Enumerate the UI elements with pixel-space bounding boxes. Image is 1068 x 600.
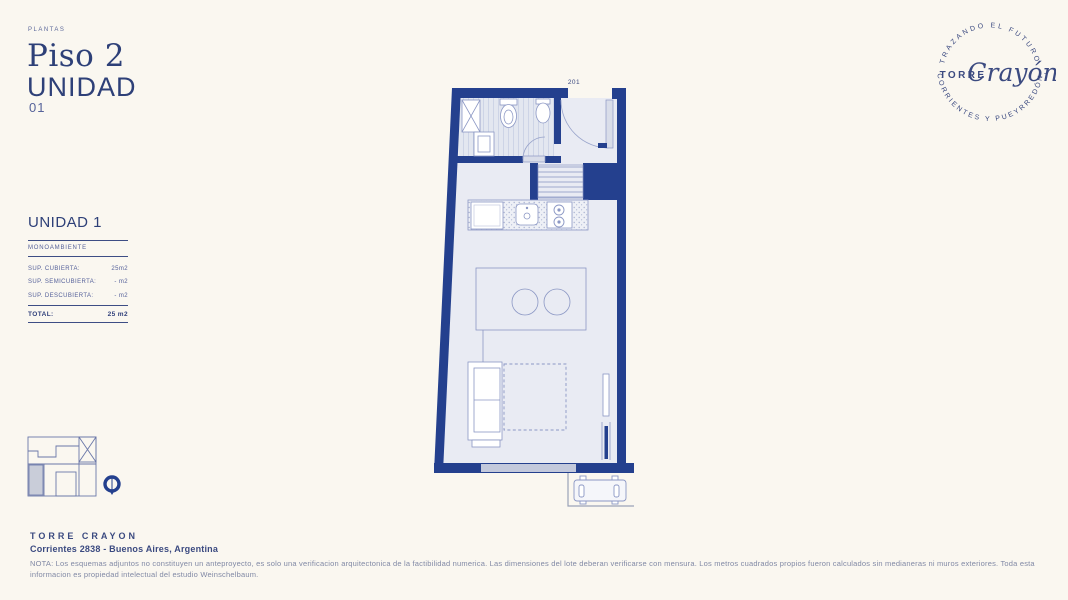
compass-arrow <box>109 490 115 495</box>
table-row: SUP. CUBIERTA: 25m2 <box>28 261 128 275</box>
brand-logo: TRAZANDO EL FUTURO CORRIENTES Y PUEYRRED… <box>924 8 1056 140</box>
row-value: 25m2 <box>111 266 128 272</box>
sink-faucet <box>526 207 528 209</box>
table-row: SUP. DESCUBIERTA: - m2 <box>28 288 128 302</box>
sofa-ottoman <box>472 440 500 447</box>
bidet-bowl <box>536 103 550 123</box>
top-wall-left <box>452 88 568 98</box>
compass-icon <box>105 477 119 495</box>
living-area <box>468 362 502 447</box>
row-value: - m2 <box>114 293 128 299</box>
unit-panel-title: UNIDAD 1 <box>28 214 128 231</box>
total-row: TOTAL: 25 m2 <box>28 306 128 322</box>
ac-detail <box>579 485 584 497</box>
logo-trailing-mark: · <box>1044 68 1047 78</box>
row-label: SUP. CUBIERTA: <box>28 266 80 272</box>
unit-info-panel: UNIDAD 1 MONOAMBIENTE SUP. CUBIERTA: 25m… <box>28 214 128 323</box>
door-stop-marker <box>598 143 607 148</box>
page-title-floor: Piso 2 <box>27 38 125 74</box>
page-title-unit-number: 01 <box>29 100 45 115</box>
table-row: SUP. SEMICUBIERTA: - m2 <box>28 275 128 289</box>
plantas-label: PLANTAS <box>28 27 65 33</box>
shaft-hatch <box>538 165 583 198</box>
brand-logo-icon: TRAZANDO EL FUTURO CORRIENTES Y PUEYRRED… <box>924 8 1056 140</box>
toilet-bowl-inner <box>504 110 513 124</box>
stove-burner-center <box>557 208 560 211</box>
floor-plan: 201 <box>428 76 640 516</box>
bathroom-bottom-wall <box>455 156 523 163</box>
unit-type-label: MONOAMBIENTE <box>28 241 128 256</box>
shaft-left-wall <box>530 163 538 200</box>
window-glass <box>603 374 609 416</box>
ac-unit <box>574 476 626 504</box>
bathroom-wall-stub <box>545 156 561 163</box>
bathroom-door-leaf <box>523 156 545 162</box>
fridge <box>471 202 503 229</box>
key-plan-drawing <box>26 434 126 506</box>
key-plan <box>26 434 126 506</box>
interior-walls <box>28 446 79 457</box>
footer-brand: TORRE CRAYON <box>30 531 138 541</box>
vanity-sink <box>478 136 490 152</box>
page-title-unit: UNIDAD <box>27 72 137 103</box>
bathroom-entry-divider-wall <box>554 96 561 144</box>
row-value: - m2 <box>114 279 128 285</box>
bottom-sliding-door <box>481 464 576 472</box>
stove-burner-center <box>557 220 560 223</box>
floor-plan-drawing: 201 <box>428 76 640 516</box>
unit-door-label: 201 <box>568 79 580 86</box>
highlighted-unit <box>29 465 43 495</box>
row-label: SUP. SEMICUBIERTA: <box>28 279 96 285</box>
right-wall <box>617 89 626 472</box>
ac-detail <box>614 485 619 497</box>
interior-room <box>56 472 76 496</box>
entrance-door-leaf <box>606 100 613 148</box>
divider <box>28 322 128 323</box>
row-label: SUP. DESCUBIERTA: <box>28 293 94 299</box>
footer-address: Corrientes 2838 - Buenos Aires, Argentin… <box>30 544 218 554</box>
toilet-tank <box>500 99 517 105</box>
window-frame-bar <box>605 426 609 459</box>
service-column <box>583 163 617 200</box>
footer-note: NOTA: Los esquemas adjuntos no constituy… <box>30 559 1042 580</box>
total-value: 25 m2 <box>108 311 128 318</box>
total-label: TOTAL: <box>28 311 54 318</box>
